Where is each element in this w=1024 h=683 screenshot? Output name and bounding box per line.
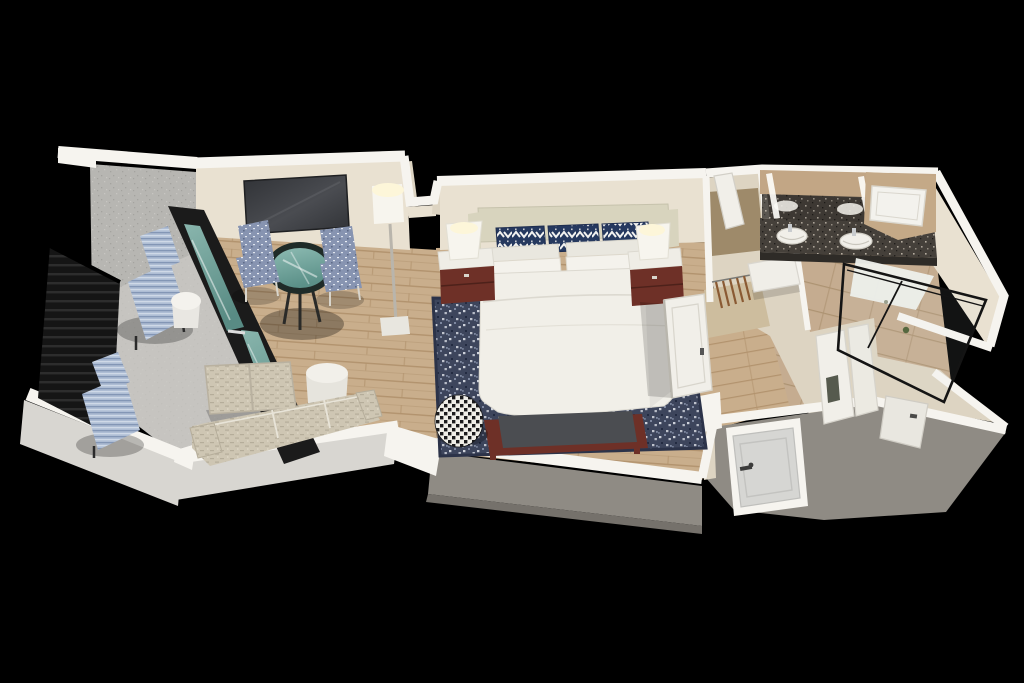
lamp-glow xyxy=(372,183,404,197)
faucet xyxy=(788,224,792,232)
chair-seat xyxy=(320,258,362,292)
bistro-table-shadow xyxy=(260,308,344,340)
floor-plan-render xyxy=(0,0,1024,683)
table-top xyxy=(171,292,201,310)
drawer-knob xyxy=(464,274,469,277)
lamp-glow xyxy=(639,224,665,236)
suite-floorplan-svg xyxy=(0,0,1024,683)
cap-living-top xyxy=(195,156,405,163)
shower-plant xyxy=(903,327,909,333)
drawer-knob xyxy=(652,276,657,279)
glass-mullion xyxy=(228,331,245,333)
lamp-base xyxy=(380,316,410,336)
cap-bedroom-closet-divider xyxy=(706,176,710,302)
chair-shadow xyxy=(316,291,364,309)
faucet xyxy=(852,228,856,236)
table-lamp-left xyxy=(446,221,482,260)
towel-hook xyxy=(826,375,840,403)
toilet-room-door xyxy=(880,396,928,448)
entry xyxy=(726,418,808,516)
bench-leg xyxy=(490,452,496,460)
pouf-body xyxy=(435,395,483,447)
notch-wall-b xyxy=(407,205,436,218)
chair-shadow xyxy=(232,287,280,305)
bedroom xyxy=(433,204,712,460)
entry-door-handle-base xyxy=(749,463,754,468)
balcony-side-table xyxy=(171,292,201,328)
door-handle xyxy=(700,348,704,355)
table-lamp-right xyxy=(636,223,670,260)
chair-seat xyxy=(236,252,280,288)
bench-cushion xyxy=(498,411,637,448)
bedroom-door xyxy=(640,294,712,398)
shower-bottle xyxy=(884,300,888,304)
table-top xyxy=(306,363,348,383)
bench-leg xyxy=(634,446,640,454)
lamp-glow xyxy=(450,222,478,234)
mirror-sink-reflection xyxy=(837,203,863,215)
